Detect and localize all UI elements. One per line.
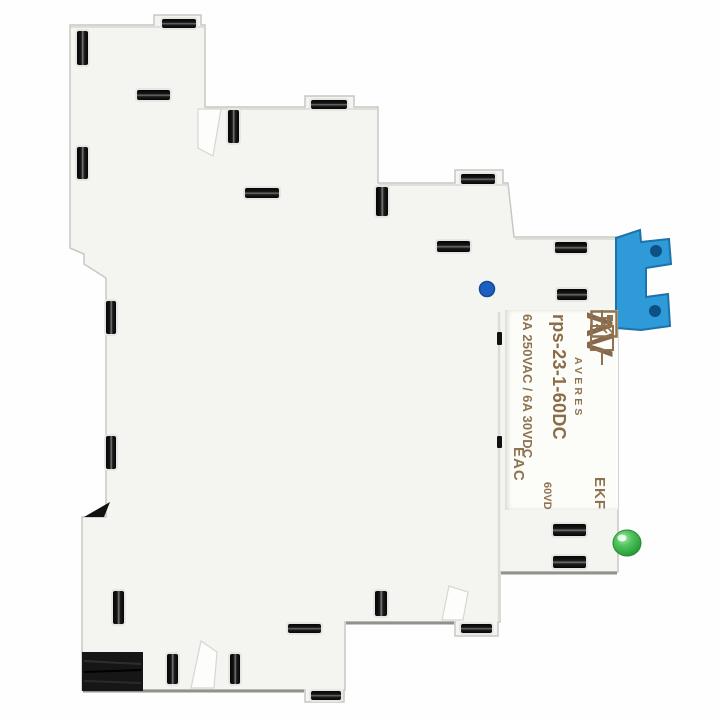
vent-slot (553, 524, 586, 536)
vent-slot (167, 654, 178, 684)
relay-product-photo: ΛV AVERES rps-23-1-60DC 6A 250VAC / 6A 3… (0, 0, 720, 720)
vent-slot (311, 100, 347, 109)
green-led-indicator (613, 530, 641, 556)
din-rail (82, 652, 143, 691)
vent-slot (553, 556, 586, 568)
vent-slot (137, 90, 170, 100)
vent-slot (113, 591, 124, 624)
vent-slot (375, 591, 387, 616)
model-number: rps-23-1-60DC (550, 314, 568, 440)
clip-hole-top (650, 245, 662, 257)
vent-slot (77, 147, 88, 179)
eac-certification-mark: EAC (511, 447, 526, 482)
manufacturer-name: EKF (592, 477, 607, 510)
vent-slot (311, 691, 341, 700)
coil-voltage: 60VDC (541, 482, 552, 510)
vent-slot (557, 289, 587, 300)
product-label: ΛV AVERES rps-23-1-60DC 6A 250VAC / 6A 3… (505, 310, 618, 510)
clip-hole-bottom (649, 305, 661, 317)
vent-slot (228, 110, 239, 143)
vent-slot (162, 19, 196, 28)
vent-slot (461, 624, 492, 633)
ekf-logo-icon (590, 310, 618, 338)
vent-slot (288, 624, 321, 633)
vent-slot (376, 187, 388, 216)
vent-slot (555, 242, 587, 253)
vent-slot (106, 436, 116, 469)
blue-indicator-dot (480, 282, 495, 297)
vent-slot (461, 174, 495, 184)
vent-slot (245, 188, 279, 198)
vent-slot (230, 654, 240, 684)
vent-slot (437, 241, 470, 252)
vent-slot (106, 301, 116, 334)
ratings-text: 6A 250VAC / 6A 30VDC (521, 314, 534, 458)
vent-slot (77, 31, 88, 65)
din-rail-clip (616, 230, 671, 330)
brand-name: AVERES (573, 357, 584, 419)
